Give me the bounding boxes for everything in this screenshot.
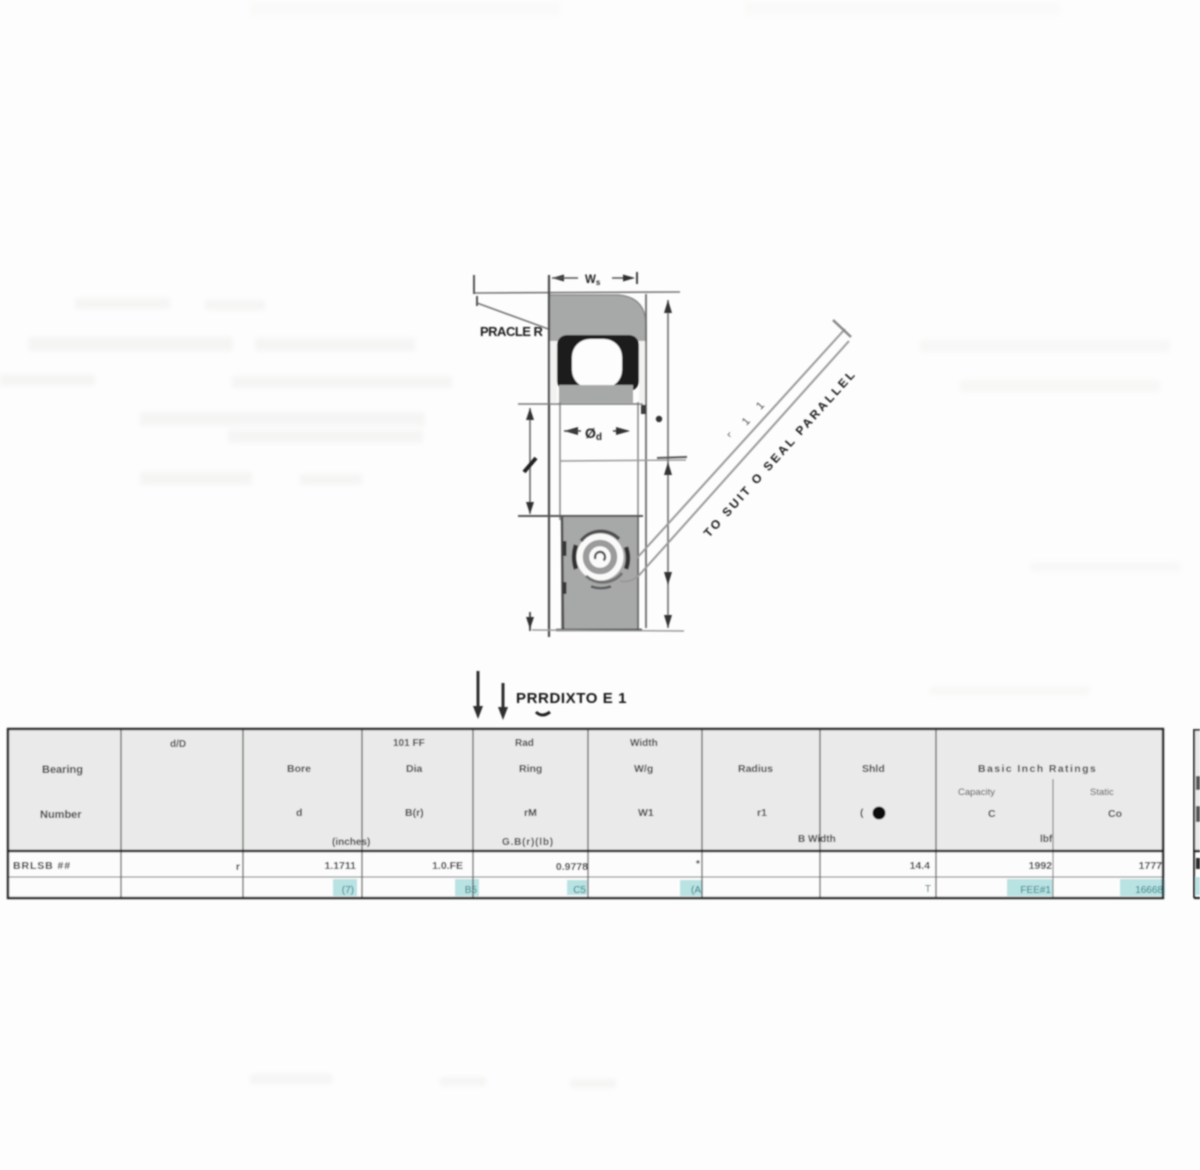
svg-text:BRLSB ##: BRLSB ## xyxy=(13,860,71,872)
svg-text:Static: Static xyxy=(1090,787,1114,798)
svg-text:PRRDIXTO E 1: PRRDIXTO E 1 xyxy=(516,690,627,707)
svg-text:101 FF: 101 FF xyxy=(393,738,425,749)
svg-text:B5: B5 xyxy=(465,885,478,896)
svg-text:Bore: Bore xyxy=(287,763,311,775)
svg-text:Bearing: Bearing xyxy=(42,764,83,776)
svg-text:Number: Number xyxy=(40,809,82,821)
svg-text:14.4: 14.4 xyxy=(910,860,931,872)
svg-text:lbf: lbf xyxy=(1040,834,1053,845)
svg-text:(A: (A xyxy=(691,885,701,896)
svg-text:1.1711: 1.1711 xyxy=(324,860,356,872)
svg-text:Width: Width xyxy=(630,738,658,749)
svg-text:(inches): (inches) xyxy=(332,837,370,848)
svg-text:W/g: W/g xyxy=(634,763,653,775)
svg-text:0.9778: 0.9778 xyxy=(556,861,588,873)
svg-text:PRACLE R: PRACLE R xyxy=(480,324,544,339)
svg-text:Radius: Radius xyxy=(738,763,773,775)
svg-text:(: ( xyxy=(860,807,864,819)
svg-text:1777: 1777 xyxy=(1139,860,1163,872)
svg-text:B Width: B Width xyxy=(798,834,836,845)
svg-text:FEE#1: FEE#1 xyxy=(1020,885,1051,896)
svg-text:d: d xyxy=(296,807,302,819)
svg-text:r: r xyxy=(236,861,240,873)
svg-text:Ring: Ring xyxy=(519,763,542,775)
svg-text:1.0.FE: 1.0.FE xyxy=(432,860,463,872)
svg-text:rM: rM xyxy=(524,807,537,819)
svg-text:(7): (7) xyxy=(342,885,354,896)
svg-text:d/D: d/D xyxy=(170,739,186,750)
svg-text:16668: 16668 xyxy=(1135,885,1163,896)
svg-text:W1: W1 xyxy=(638,807,654,819)
svg-text:C: C xyxy=(988,808,996,820)
svg-text:Shld: Shld xyxy=(862,763,885,775)
svg-text:Dia: Dia xyxy=(406,763,423,775)
svg-text:G.B(r)(lb): G.B(r)(lb) xyxy=(502,837,554,848)
svg-text:1992: 1992 xyxy=(1029,860,1053,872)
svg-text:C5: C5 xyxy=(573,885,586,896)
svg-text:B(r): B(r) xyxy=(405,807,424,819)
svg-text:T: T xyxy=(925,884,931,895)
svg-text:Rad: Rad xyxy=(515,738,534,749)
svg-text:Co: Co xyxy=(1108,808,1122,820)
svg-text:r1: r1 xyxy=(757,807,767,819)
svg-text:Basic Inch Ratings: Basic Inch Ratings xyxy=(978,763,1097,775)
svg-text:Capacity: Capacity xyxy=(958,787,995,798)
